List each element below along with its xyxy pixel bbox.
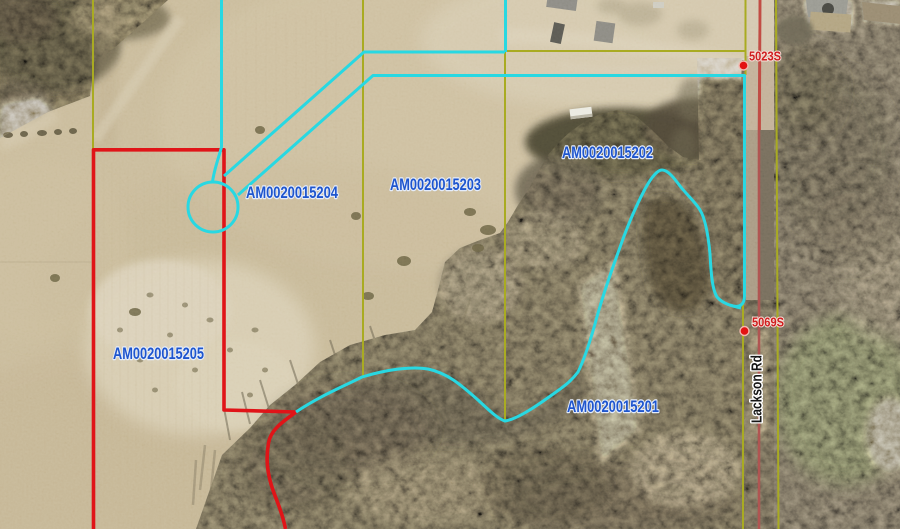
svg-text:AM0020015203: AM0020015203	[390, 175, 481, 194]
svg-text:5069S: 5069S	[752, 316, 784, 330]
svg-text:5023S: 5023S	[749, 50, 781, 64]
svg-text:AM0020015205: AM0020015205	[113, 344, 204, 363]
svg-text:AM0020015202: AM0020015202	[562, 143, 653, 162]
svg-text:AM0020015201: AM0020015201	[567, 397, 659, 416]
svg-text:Lackson Rd: Lackson Rd	[750, 355, 766, 423]
svg-text:AM0020015204: AM0020015204	[246, 183, 338, 202]
